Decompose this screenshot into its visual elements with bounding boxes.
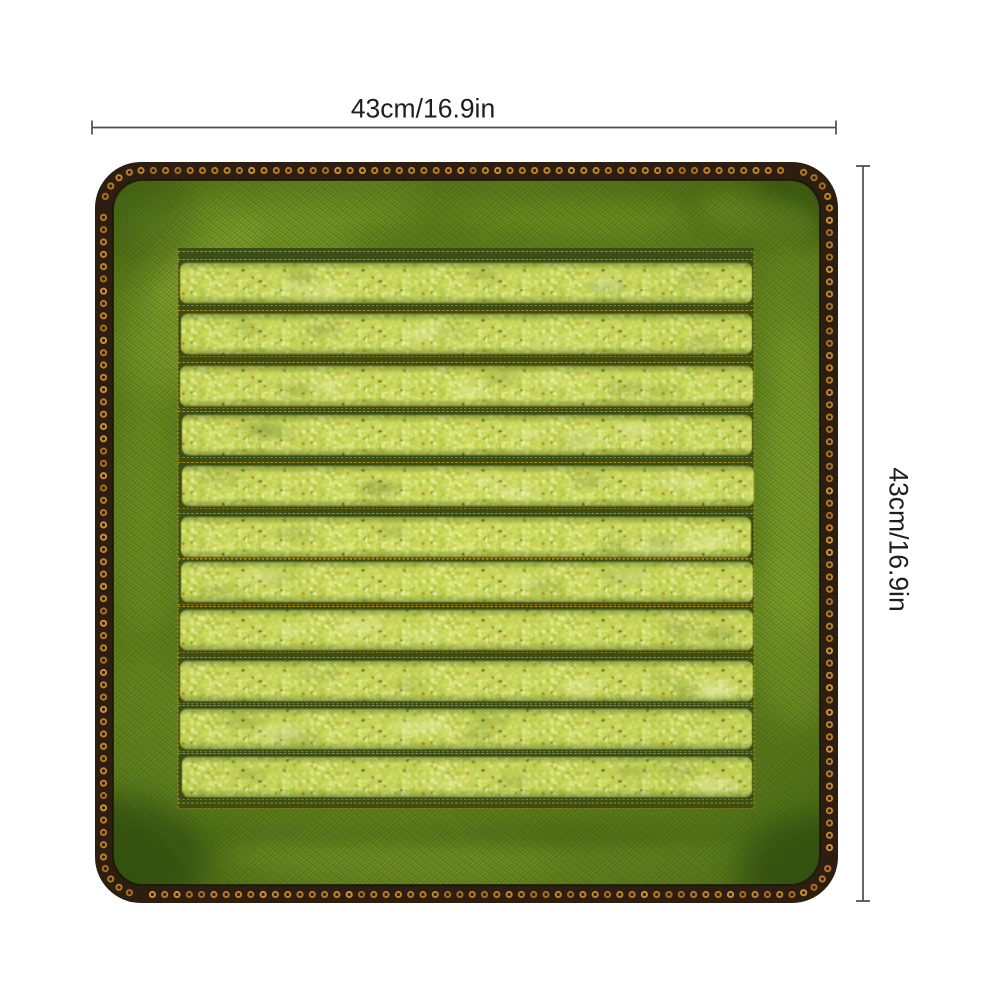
svg-text:43cm/16.9in: 43cm/16.9in	[351, 94, 495, 124]
svg-text:43cm/16.9in: 43cm/16.9in	[884, 467, 914, 611]
